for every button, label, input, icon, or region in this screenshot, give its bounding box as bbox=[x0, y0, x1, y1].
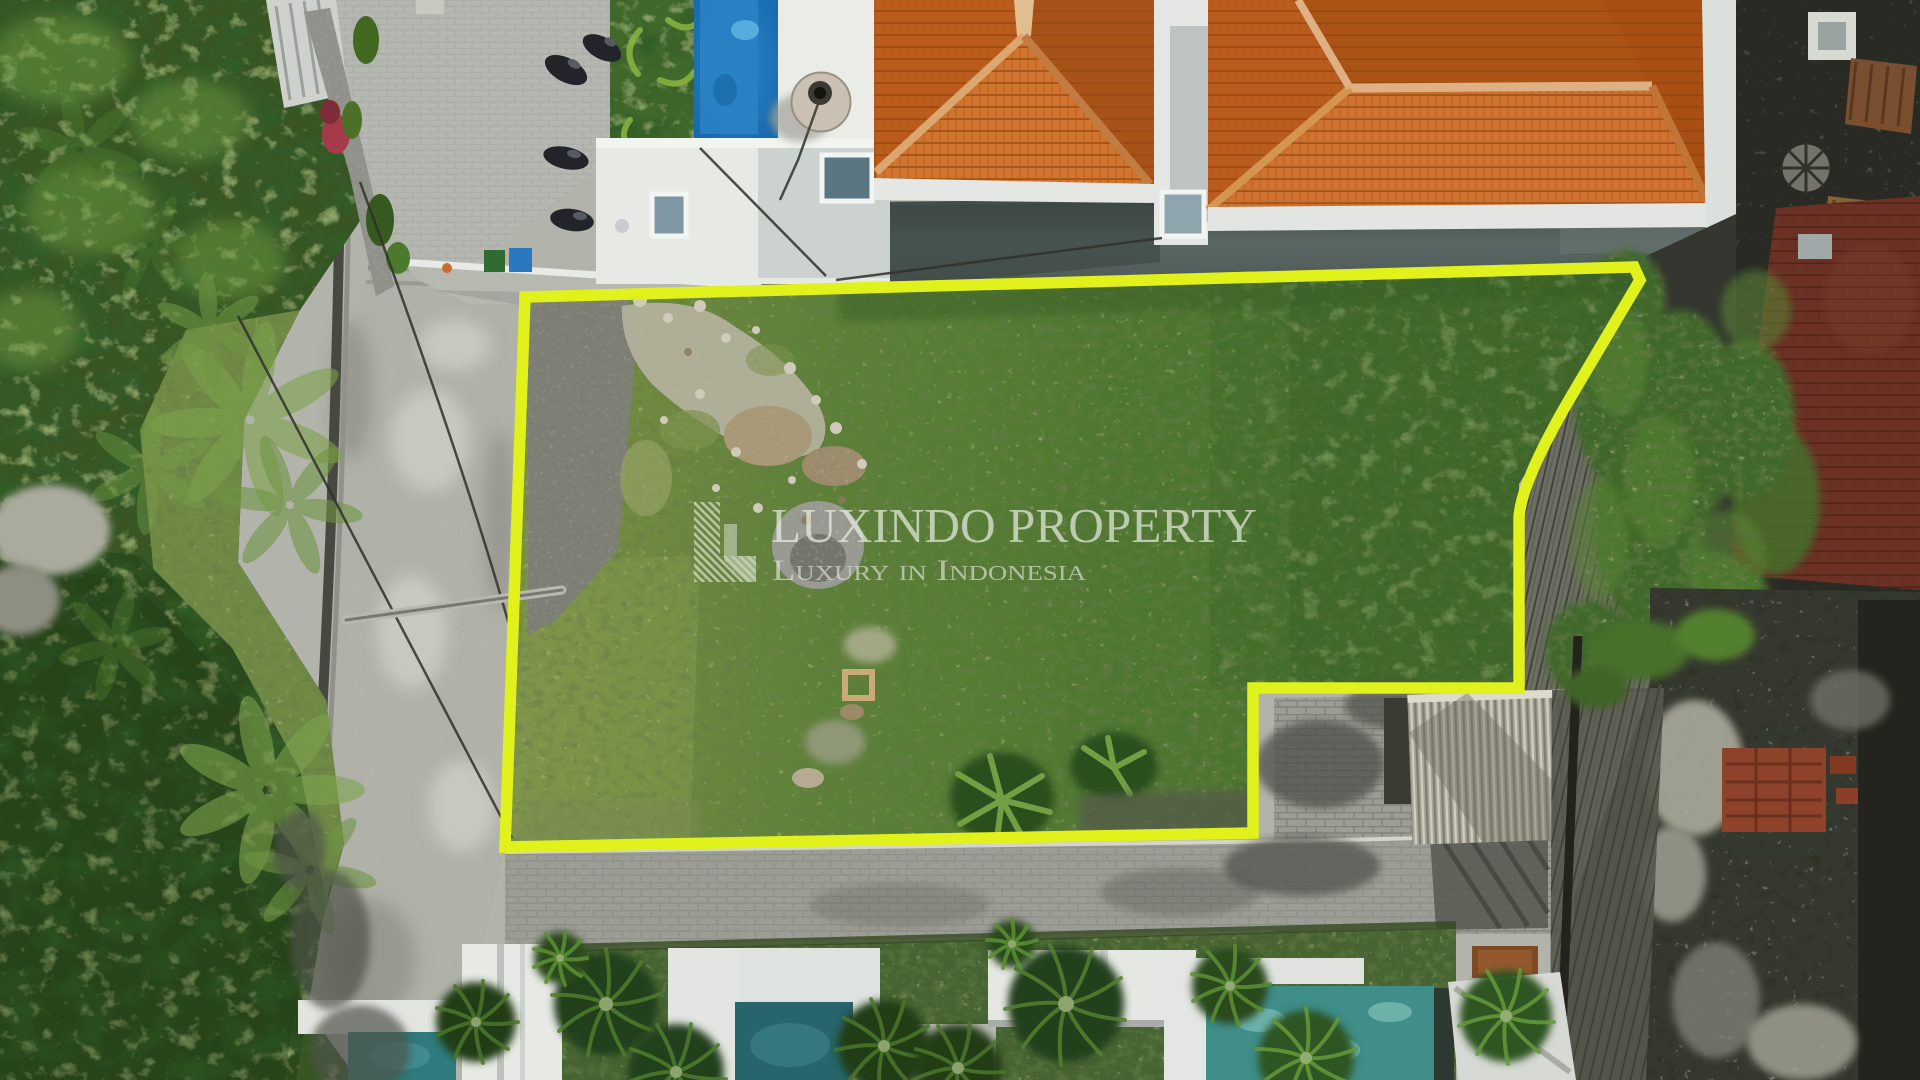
svg-text:Luxury in Indonesia: Luxury in Indonesia bbox=[772, 554, 1087, 587]
svg-text:LUXINDO PROPERTY: LUXINDO PROPERTY bbox=[771, 498, 1257, 553]
